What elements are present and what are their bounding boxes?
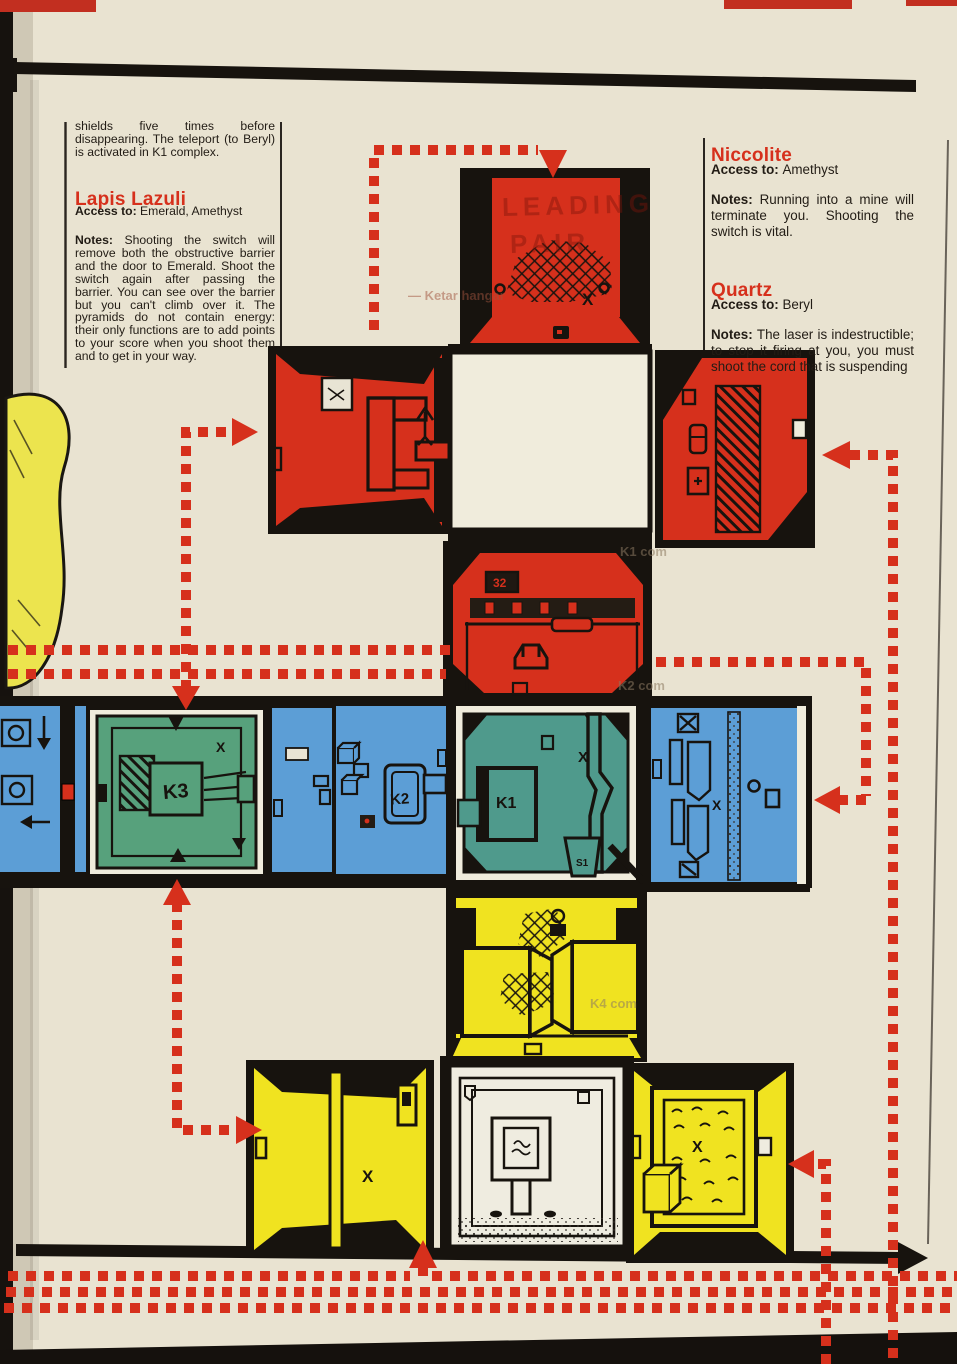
k1-label: K1 — [496, 795, 517, 812]
left-intro-paragraph: shields five times before disappearing. … — [75, 120, 275, 159]
room-bottom-left-yellow: X — [246, 1060, 434, 1258]
niccolite-access-line: Access to: Amethyst — [711, 162, 914, 178]
lapis-notes-paragraph: Notes: Shooting the switch will remove b… — [75, 234, 275, 363]
access-value: Emerald, Amethyst — [140, 204, 242, 218]
notes-label: Notes: — [711, 327, 757, 342]
access-value: Amethyst — [782, 162, 838, 177]
hatched-column — [716, 386, 760, 532]
room-middle-red: 32 — [443, 541, 652, 703]
room-k2-blue: K2 — [336, 706, 446, 874]
pole-doodle — [330, 1072, 342, 1248]
room-left-red — [268, 346, 450, 534]
access-value: Beryl — [782, 297, 813, 312]
console-doodle — [368, 398, 394, 490]
route-bottom-right — [812, 1164, 826, 1364]
k3-label: K3 — [162, 780, 189, 804]
arrow-into-blue-room — [814, 786, 840, 814]
room-right-red — [655, 350, 815, 548]
x-mark-bottom-left: X — [362, 1167, 374, 1186]
room-left-corridor-blue — [0, 706, 86, 872]
route-right-long — [850, 455, 893, 1364]
pyramid-doodle — [515, 645, 547, 668]
rule-arrow-right — [898, 1242, 928, 1274]
room-yellow-net — [446, 886, 647, 1062]
right-block — [572, 942, 638, 1032]
door-notch — [793, 420, 806, 438]
page-edge-red-strips — [0, 0, 957, 12]
x-mark-bottom-right: X — [692, 1139, 703, 1156]
floor-stipple — [458, 1218, 618, 1242]
access-label: Access to: — [75, 204, 140, 218]
bucket-doodle — [565, 838, 600, 876]
door-notch-right — [758, 1138, 771, 1155]
room-center-empty — [448, 344, 652, 541]
x-mark-blue-room: X — [712, 797, 722, 813]
room-bottom-center-white — [440, 1056, 634, 1256]
middle-band: K3 X K2 — [0, 696, 812, 892]
stipple-strip — [728, 712, 740, 880]
lapis-access-line: Access to: Emerald, Amethyst — [75, 205, 275, 218]
x-mark-k1-room: X — [578, 749, 588, 766]
niccolite-notes-paragraph: Notes: Running into a mine will terminat… — [711, 192, 914, 240]
x-mark-k3-room: X — [216, 739, 226, 755]
icon-band — [470, 598, 635, 618]
magazine-page-scan: X — [0, 0, 957, 1364]
route-bottom-left — [177, 902, 234, 1130]
notes-value: Shooting the switch will remove both the… — [75, 233, 275, 363]
access-label: Access to: — [711, 162, 782, 177]
box-doodle — [644, 1165, 680, 1212]
arrow-into-right-red-room — [822, 441, 850, 469]
notes-label: Notes: — [75, 233, 124, 247]
notes-label: Notes: — [711, 192, 760, 207]
badge-32-label: 32 — [493, 576, 507, 590]
room-blue-narrow — [272, 708, 332, 872]
quartz-notes-paragraph: Notes: The laser is indestructible; to s… — [711, 327, 914, 375]
arrow-into-left-red-room — [232, 418, 258, 446]
room-k1-teal: K1 X S1 — [448, 698, 644, 888]
s1-label: S1 — [576, 858, 589, 869]
room-top-red: X — [460, 168, 650, 350]
x-mark-top-room: X — [582, 290, 594, 309]
handle-doodle — [552, 618, 592, 631]
room-right-blue: X — [643, 698, 810, 892]
room-k3-green: K3 X — [88, 708, 265, 876]
adjacent-page-illustration — [6, 394, 69, 688]
k2-label: K2 — [390, 790, 410, 808]
access-label: Access to: — [711, 297, 782, 312]
room-bottom-right-yellow: X — [626, 1063, 794, 1263]
quartz-access-line: Access to: Beryl — [711, 297, 914, 313]
corridor-badge — [62, 784, 74, 800]
